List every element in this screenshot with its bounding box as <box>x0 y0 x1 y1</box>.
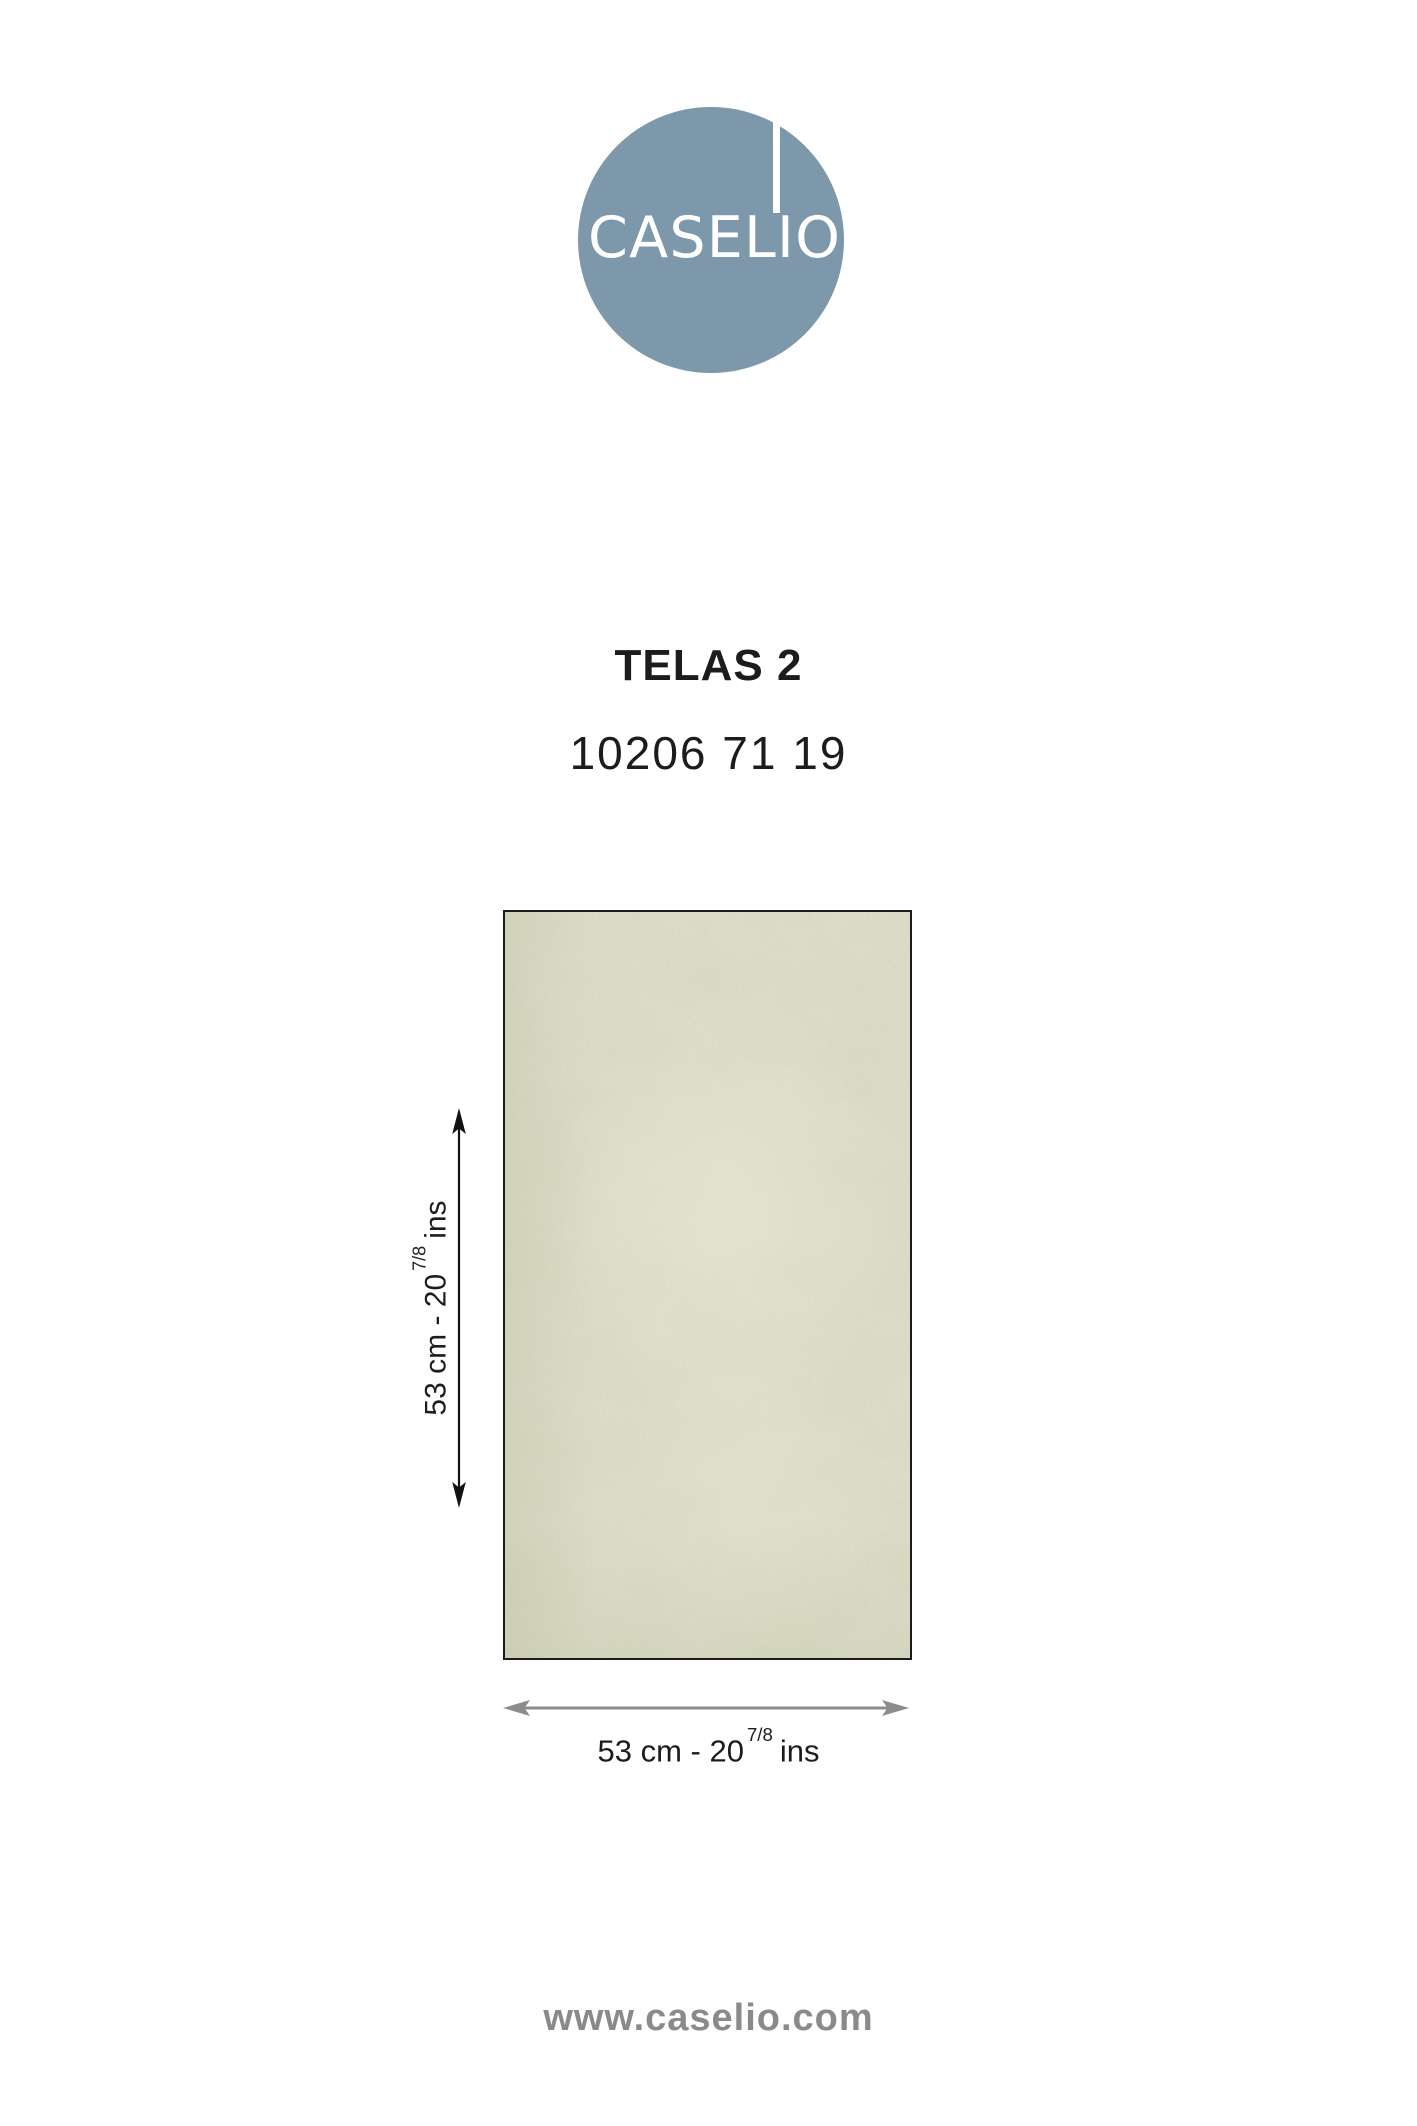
product-reference: 10206 71 19 <box>0 726 1417 780</box>
logo-i-bar <box>773 85 780 213</box>
width-dimension-label: 53 cm - 207/8ins <box>0 1733 1417 1769</box>
width-label-prefix: 53 cm - 20 <box>598 1733 744 1768</box>
width-label-unit: ins <box>780 1733 820 1768</box>
product-sheet: CASELIO TELAS 2 10206 71 19 <box>0 0 1417 2126</box>
height-label-prefix: 53 cm - 20 <box>420 1274 453 1416</box>
height-label-unit: ins <box>420 1200 453 1238</box>
website-url: www.caselio.com <box>0 1997 1417 2040</box>
logo-wordmark: CASELIO <box>588 205 840 271</box>
caselio-logo: CASELIO <box>577 85 845 375</box>
wallpaper-swatch <box>503 910 912 1660</box>
collection-title: TELAS 2 <box>0 641 1417 691</box>
width-dimension-arrow <box>499 1696 913 1720</box>
width-label-fraction: 7/8 <box>747 1724 773 1745</box>
height-dimension-label: 53 cm - 207/8ins <box>419 1200 454 1415</box>
swatch-sheen <box>505 912 910 1658</box>
height-label-fraction: 7/8 <box>410 1246 430 1271</box>
